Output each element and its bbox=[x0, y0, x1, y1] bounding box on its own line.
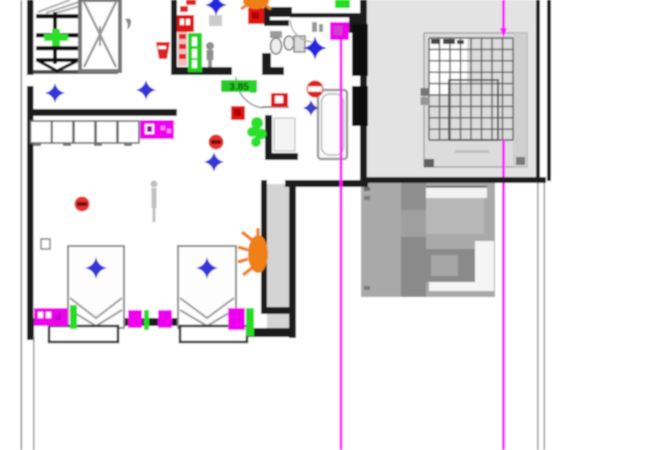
svg-text:3.85: 3.85 bbox=[229, 82, 249, 93]
